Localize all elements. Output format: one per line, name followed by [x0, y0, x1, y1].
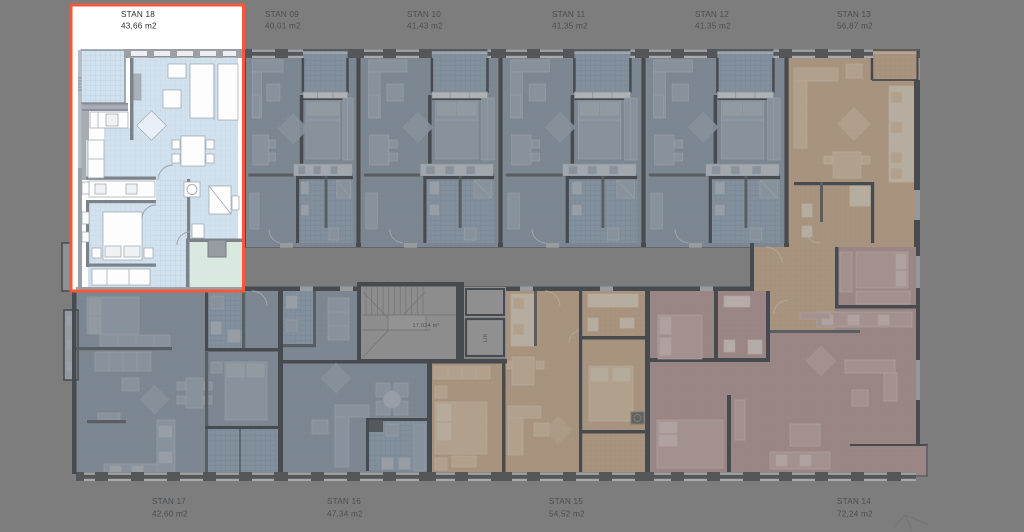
svg-text:STAN 12: STAN 12: [695, 10, 729, 19]
svg-text:72,24 m2: 72,24 m2: [837, 510, 873, 519]
svg-text:43,66 m2: 43,66 m2: [121, 22, 157, 31]
svg-text:42,60 m2: 42,60 m2: [152, 510, 188, 519]
svg-text:STAN 13: STAN 13: [837, 10, 871, 19]
svg-text:STAN 09: STAN 09: [265, 10, 299, 19]
svg-text:STAN 17: STAN 17: [152, 497, 186, 506]
svg-text:STAN 16: STAN 16: [327, 497, 361, 506]
svg-text:40,01 m2: 40,01 m2: [265, 22, 301, 31]
svg-text:41,35 m2: 41,35 m2: [552, 22, 588, 31]
svg-text:STAN 14: STAN 14: [837, 497, 871, 506]
svg-text:41,35 m2: 41,35 m2: [695, 22, 731, 31]
svg-text:47,34 m2: 47,34 m2: [327, 510, 363, 519]
svg-text:STAN 10: STAN 10: [407, 10, 441, 19]
svg-text:STAN 11: STAN 11: [552, 10, 586, 19]
svg-text:41,43 m2: 41,43 m2: [407, 22, 443, 31]
svg-text:STAN 18: STAN 18: [121, 10, 155, 19]
svg-text:54,52 m2: 54,52 m2: [549, 510, 585, 519]
svg-text:56,87 m2: 56,87 m2: [837, 22, 873, 31]
svg-text:STAN 15: STAN 15: [549, 497, 583, 506]
